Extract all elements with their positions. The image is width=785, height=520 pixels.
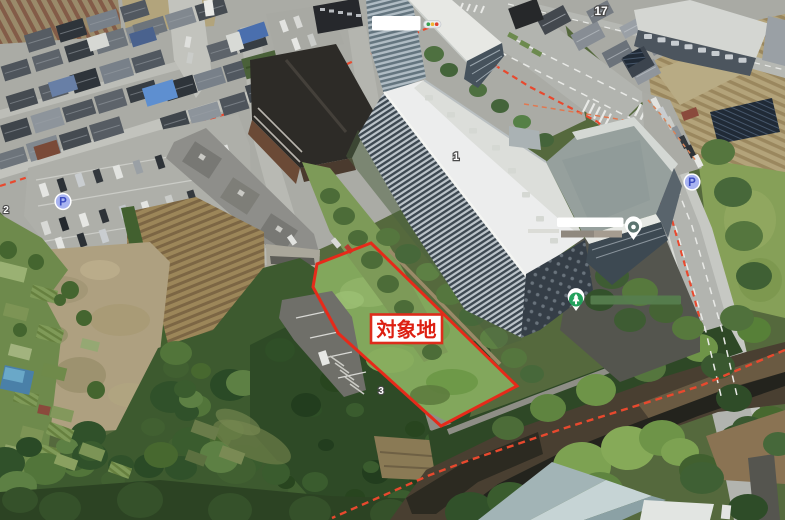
- svg-text:対象地: 対象地: [376, 318, 437, 342]
- svg-text:2: 2: [3, 205, 9, 216]
- svg-text:P: P: [688, 177, 696, 189]
- svg-text:17: 17: [594, 4, 608, 18]
- svg-text:1: 1: [453, 151, 459, 163]
- svg-text:P: P: [59, 197, 67, 209]
- svg-text:3: 3: [378, 386, 384, 397]
